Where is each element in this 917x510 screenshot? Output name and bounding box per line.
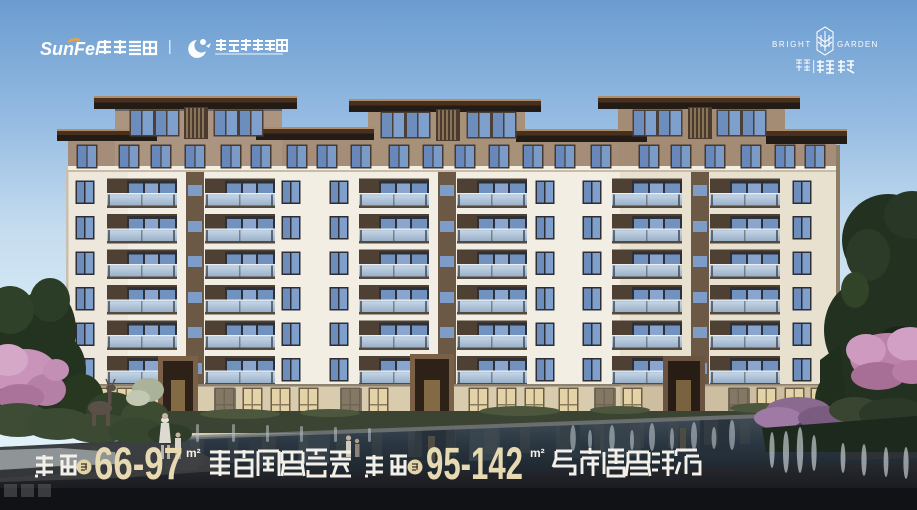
svg-text:SunFel: SunFel [40,39,101,59]
svg-text:66-97: 66-97 [94,438,183,489]
svg-text:m²: m² [186,446,201,460]
svg-text:95-142: 95-142 [426,438,523,489]
svg-text:BRIGHT: BRIGHT [772,40,812,49]
svg-text:m²: m² [530,446,545,460]
svg-text:GARDEN: GARDEN [837,40,878,49]
